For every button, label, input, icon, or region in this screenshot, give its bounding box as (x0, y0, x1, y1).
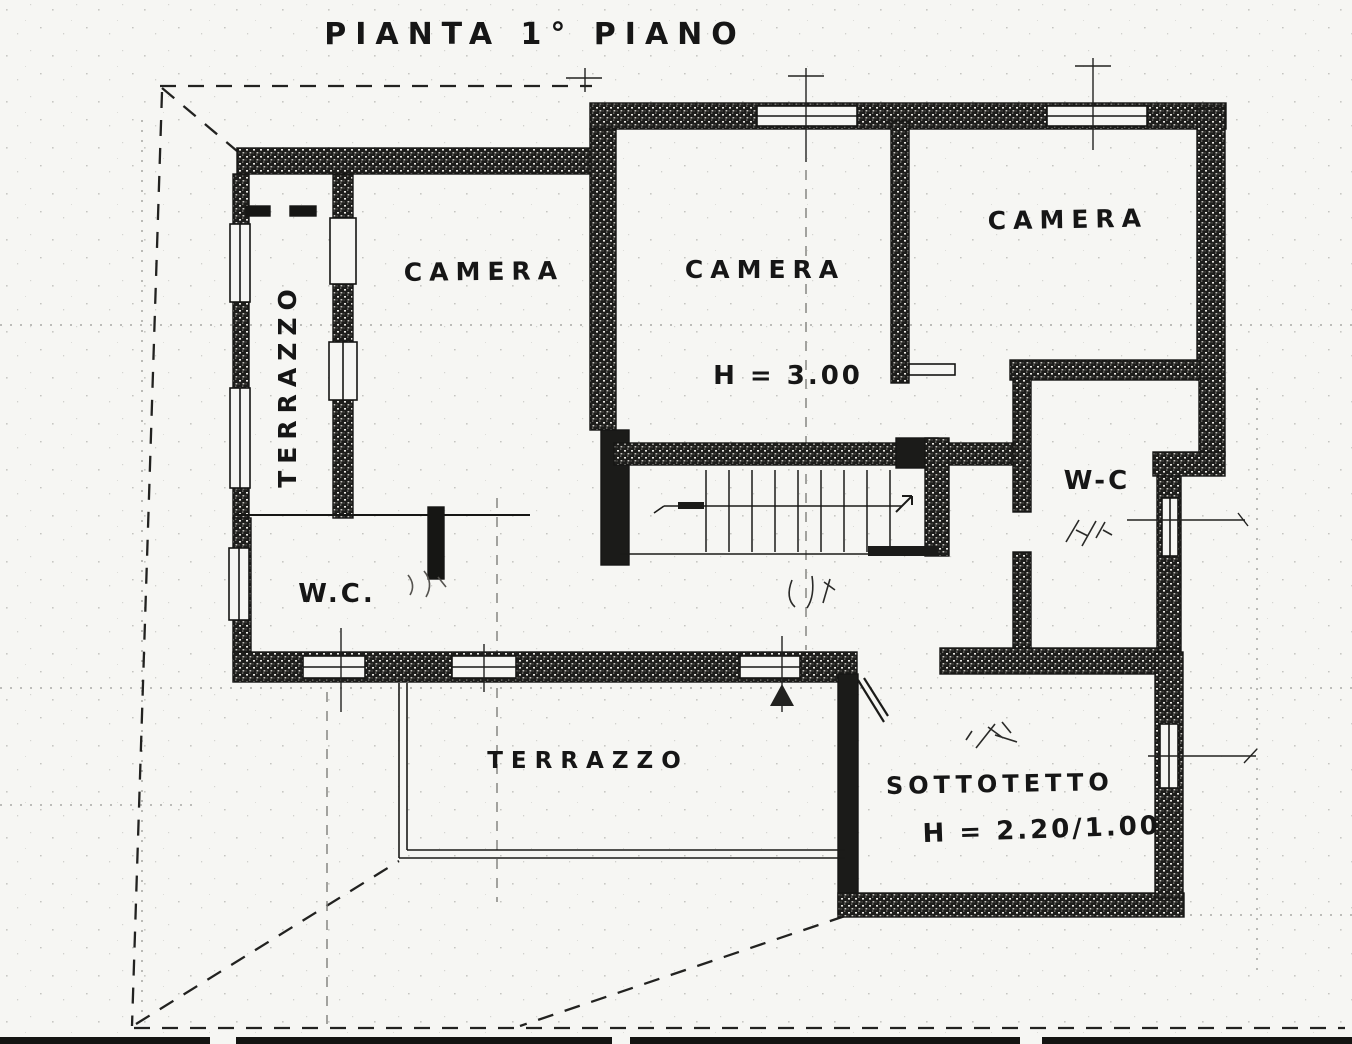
paper-background (0, 0, 1352, 1044)
door-opening (909, 364, 955, 375)
wall-wc-partition (428, 507, 444, 579)
scan-edge-band (0, 1037, 1352, 1044)
wall-wc-right-west-upper (1013, 378, 1031, 512)
height-note-camera-middle: H = 3.00 (713, 361, 863, 391)
plan-title: PIANTA 1° PIANO (324, 17, 746, 52)
scanned-floor-plan-page: PIANTA 1° PIANO CAMERA CAMERA H = 3.00 C… (0, 0, 1352, 1044)
room-label-camera-left: CAMERA (404, 256, 565, 287)
room-label-camera-right: CAMERA (987, 204, 1148, 236)
room-label-wc-right: W-C (1064, 466, 1130, 496)
wall-sottotetto-south (838, 893, 1184, 917)
wall-stair-top (614, 443, 1014, 465)
wall-step (1153, 452, 1225, 476)
room-label-camera-middle: CAMERA (685, 255, 845, 284)
door-jamb-mark (290, 206, 316, 216)
floor-plan-drawing: PIANTA 1° PIANO CAMERA CAMERA H = 3.00 C… (0, 0, 1352, 1044)
room-label-wc-left: W.C. (298, 579, 375, 609)
door-jamb-mark (246, 206, 270, 216)
room-label-terrazzo-bottom: TERRAZZO (487, 748, 689, 774)
wall-wc-right-west-lower (1013, 552, 1031, 658)
room-label-terrazzo-left: TERRAZZO (273, 282, 302, 488)
room-label-sottotetto: SOTTOTETTO (886, 768, 1114, 800)
wall-between-left-middle-camera (590, 129, 616, 430)
wall-top-left-block (237, 148, 613, 174)
wall-stair-right (925, 438, 949, 556)
wall-sottotetto-west (838, 674, 858, 914)
wall-wc-right-south (940, 648, 1180, 674)
wall-right-camera-east (1197, 108, 1225, 380)
wall-right-camera-south (1010, 360, 1200, 380)
wall-between-middle-right-camera (891, 121, 909, 383)
